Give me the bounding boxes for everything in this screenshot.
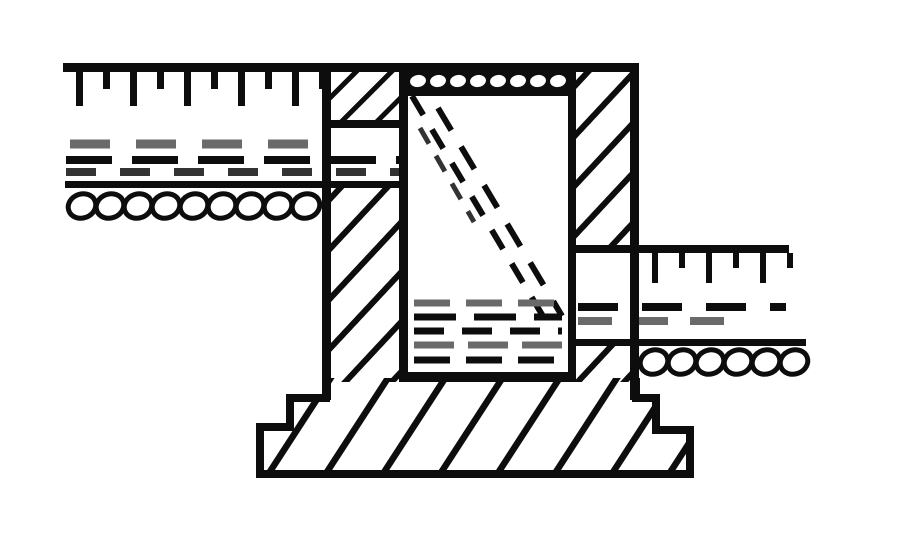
soil-dashed-layer-right — [578, 307, 786, 321]
left-wall-outer-edge — [322, 63, 331, 400]
ground-tick — [760, 253, 766, 283]
right-wall-outer-edge — [630, 63, 639, 400]
ground-tick — [76, 72, 83, 106]
ground-tick — [265, 72, 272, 89]
ground-tick — [103, 72, 110, 89]
window-glazing — [412, 96, 562, 328]
ground-tick — [238, 72, 245, 106]
gravel-stone — [289, 190, 324, 222]
right-wall-inner-edge — [568, 63, 576, 382]
ground-tick — [184, 72, 191, 106]
ground-ticks-left — [76, 72, 326, 106]
soil-layer-boundary-line-left — [65, 181, 408, 188]
soil-gravel-layer-right — [637, 346, 812, 378]
soil-dashed-layer-left — [66, 144, 406, 172]
left-wall-top-block-hatch — [331, 72, 399, 122]
soil-gravel-layer-left — [65, 190, 324, 222]
right-wall-upper-hatch — [576, 72, 630, 247]
glazing-line — [420, 128, 474, 222]
ground-tick — [679, 253, 685, 268]
ground-tick — [652, 253, 658, 283]
ground-tick — [706, 253, 712, 283]
section-drawing-canvas — [0, 0, 922, 558]
left-wall-inner-edge — [399, 63, 408, 382]
ground-tick — [787, 253, 793, 268]
glazing-line — [412, 96, 550, 328]
stepped-foundation-footing — [256, 378, 694, 478]
ground-tick — [319, 72, 326, 89]
glazing-line — [438, 108, 562, 316]
ground-tick — [733, 253, 739, 268]
grate-band — [404, 66, 572, 96]
gravel-stone — [777, 346, 812, 378]
ground-ticks-right — [652, 253, 793, 283]
left-well-wall — [322, 63, 408, 400]
technical-drawing — [0, 0, 922, 558]
left-wall-hatch — [331, 188, 399, 382]
ground-tick — [292, 72, 299, 106]
ground-tick — [157, 72, 164, 89]
right-basement-wall — [568, 63, 639, 400]
well-grate — [404, 66, 572, 96]
ground-tick — [130, 72, 137, 106]
right-wall-lower-hatch — [576, 346, 630, 382]
shaft-bottom-line — [404, 372, 572, 382]
left-wall-top-block-bottom-line — [322, 120, 408, 128]
ground-surface-lower-right — [568, 245, 793, 283]
window-well-shaft — [412, 96, 562, 360]
ground-line-lower — [568, 245, 789, 253]
soil-layer-boundary-line-right — [568, 339, 806, 346]
footing-hatch-fill — [256, 378, 694, 478]
ground-tick — [211, 72, 218, 89]
